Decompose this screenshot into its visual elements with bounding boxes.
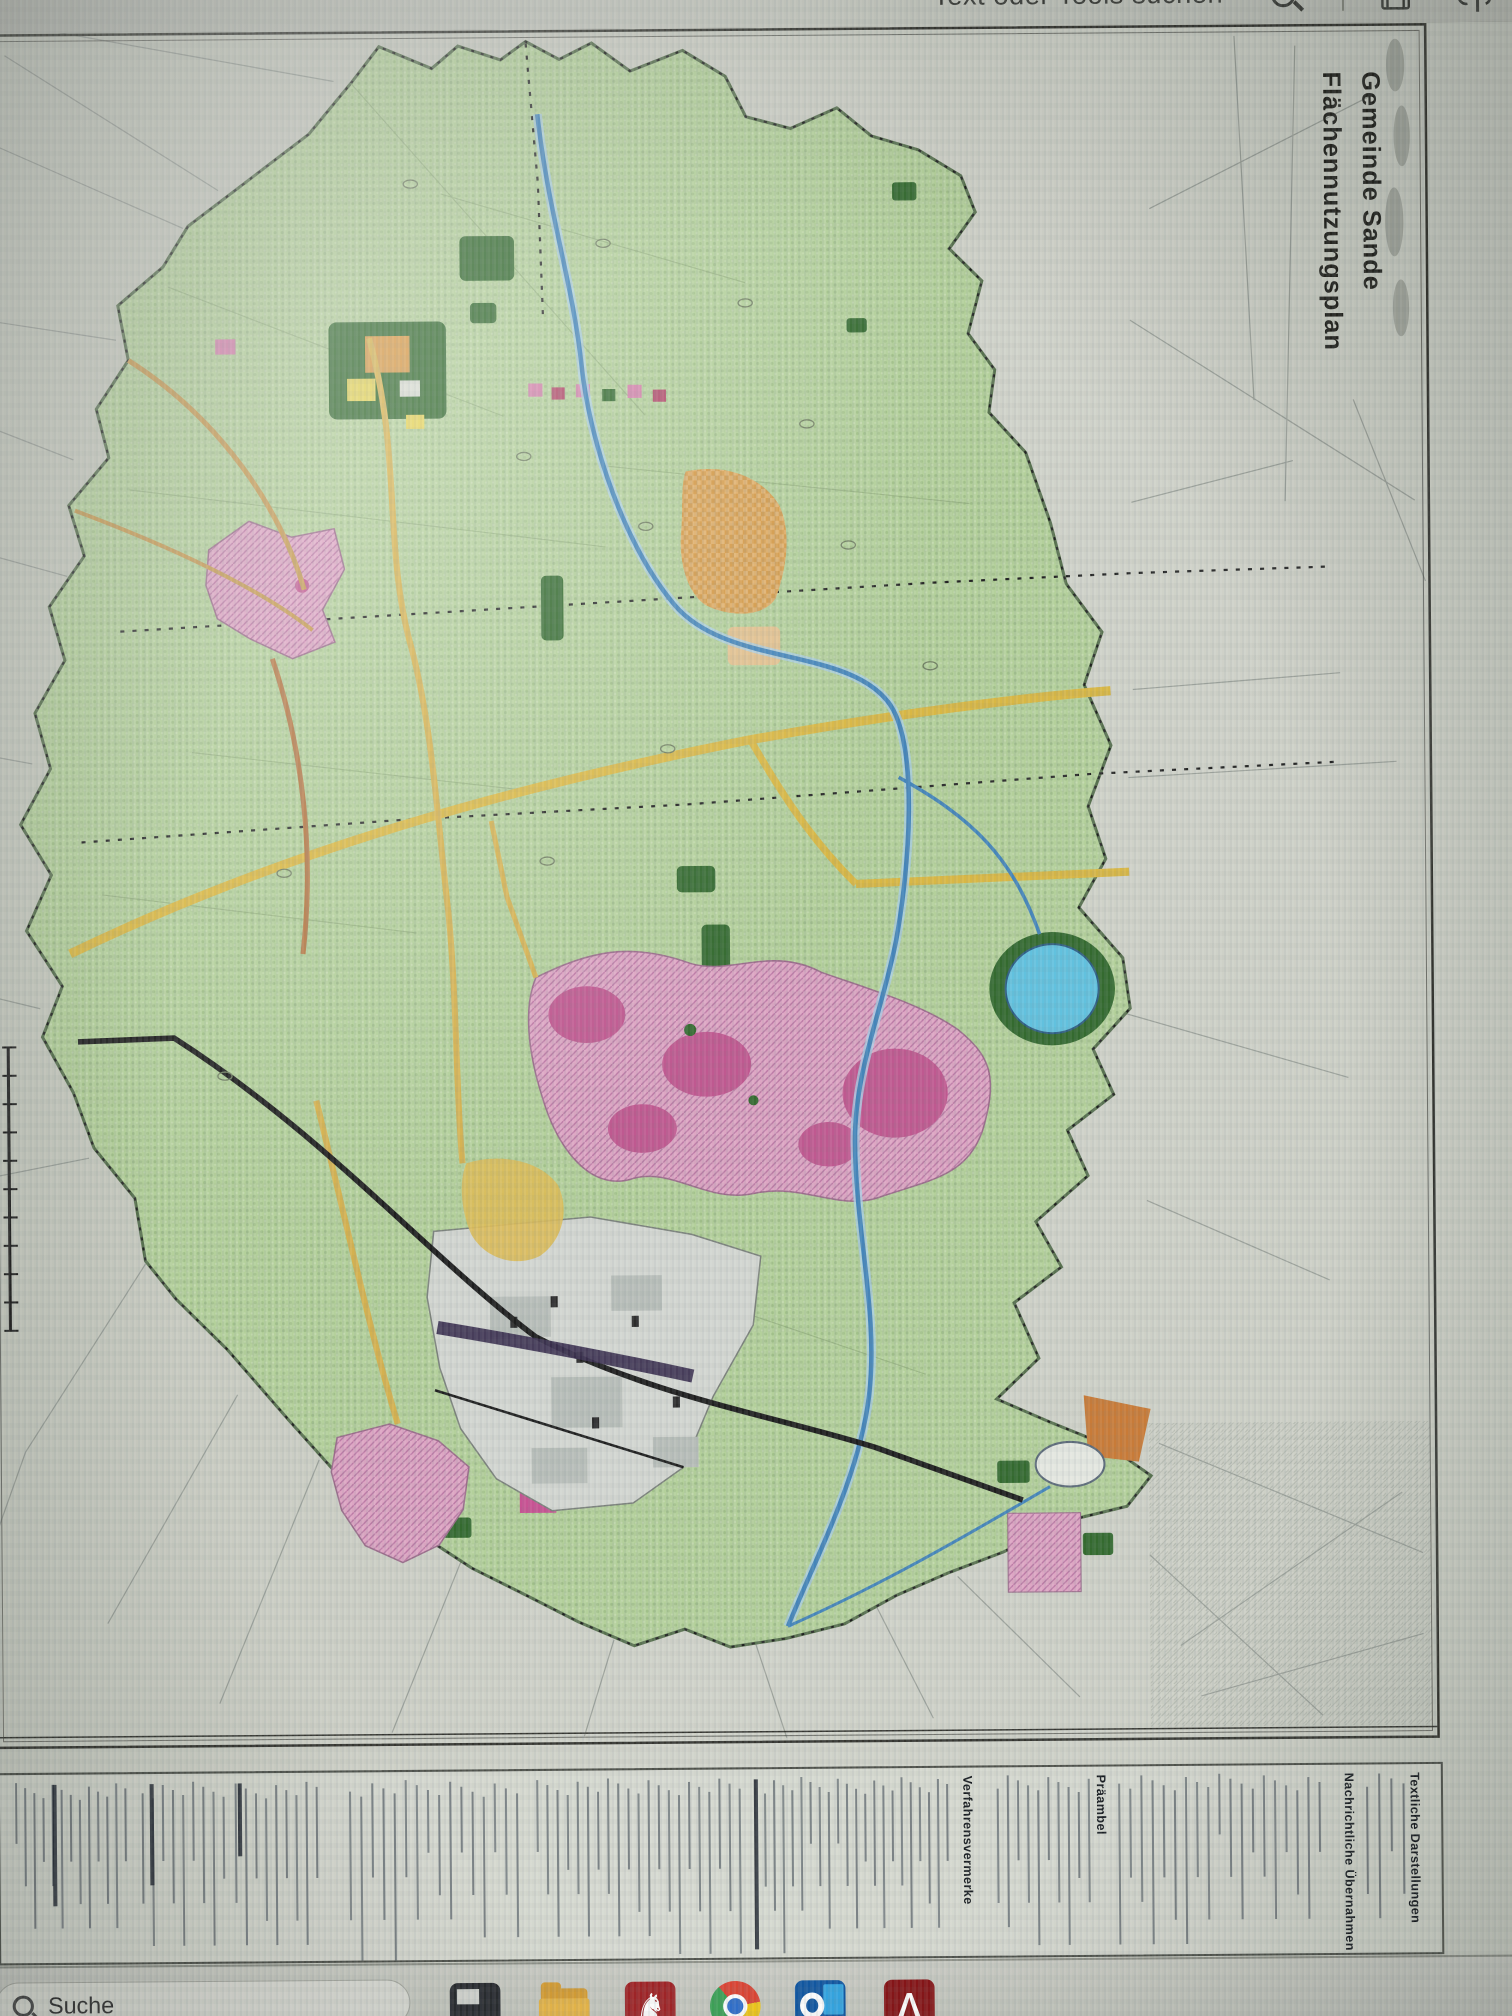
- legend-text-column: [1296, 1790, 1299, 1894]
- legend-text-column: [1185, 1777, 1188, 1944]
- lake: [1005, 944, 1099, 1034]
- search-icon[interactable]: [1271, 0, 1295, 7]
- legend-text-column: [88, 1787, 91, 1929]
- legend-text-column: [1402, 1783, 1405, 1893]
- legend-text-column: [33, 1793, 36, 1929]
- legend-section-header-bar: [52, 1785, 57, 1906]
- legend-text-column: [371, 1783, 374, 1877]
- legend-text-column: [864, 1794, 867, 1862]
- legend-text-column: [15, 1783, 18, 1844]
- legend-text-column: [1241, 1784, 1244, 1920]
- legend-text-column: [1068, 1787, 1071, 1945]
- legend-text-column: [627, 1788, 630, 1869]
- legend-text-column: [483, 1797, 486, 1938]
- legend-text-column: [997, 1789, 1000, 1903]
- legend-text-column: [837, 1779, 840, 1844]
- toolbar-separator: [1342, 0, 1344, 11]
- legend-text-column: [162, 1785, 165, 1861]
- legend-text-column: [1140, 1775, 1143, 1902]
- legend-text-column: [782, 1785, 785, 1953]
- legend-text-column: [182, 1795, 185, 1946]
- legend-text-column: [438, 1795, 441, 1895]
- legend-text-column: [70, 1795, 73, 1862]
- legend-text-column: [1017, 1780, 1020, 1860]
- legend-text-column: [106, 1797, 109, 1904]
- legend-text-column: [819, 1787, 822, 1886]
- legend-text-column: [1163, 1785, 1166, 1877]
- legend-text-column: [1218, 1774, 1221, 1835]
- legend-text-column: [1285, 1785, 1288, 1852]
- scale-bar: [2, 1047, 18, 1330]
- legend-text-column: [607, 1779, 610, 1894]
- file-explorer-icon[interactable]: [539, 1982, 590, 2016]
- legend-section-header-bar: [238, 1783, 243, 1856]
- legend-text-column: [1274, 1780, 1277, 1919]
- legend-text-column: [846, 1784, 849, 1886]
- legend-text-column: [97, 1792, 100, 1862]
- pond: [1035, 1442, 1104, 1487]
- legend-text-column: [79, 1800, 82, 1904]
- legend-text-column: [900, 1777, 903, 1885]
- legend-text-column: [494, 1783, 497, 1852]
- legend-text-column: [1027, 1785, 1030, 1902]
- legend-text-column: [416, 1785, 419, 1920]
- legend-text-column: [394, 1793, 397, 1962]
- legend-text-column: [698, 1787, 701, 1911]
- taskbar-search-label: Suche: [48, 1991, 114, 2016]
- pdf-page: Gemeinde Sande Flächennutzungsplan Verfa…: [0, 22, 1512, 1967]
- legend-text-column: [739, 1789, 742, 1954]
- land-use-map: [0, 22, 1512, 1967]
- legend-text-column: [873, 1780, 876, 1885]
- legend-text-column: [637, 1793, 640, 1911]
- legend-text-column: [212, 1792, 215, 1946]
- legend-text-column: [658, 1785, 661, 1869]
- legend-text-column: [24, 1788, 27, 1886]
- legend-text-column: [919, 1787, 922, 1861]
- legend-text-column: [471, 1792, 474, 1895]
- legend-text-column: [828, 1792, 831, 1929]
- legend-text-column: [587, 1787, 590, 1937]
- legend-text-column: [202, 1787, 205, 1903]
- legend-text-column: [1390, 1778, 1393, 1851]
- legend-text-column: [1196, 1782, 1199, 1877]
- legend-header-verfahrensvermerke: Verfahrensvermerke: [960, 1776, 975, 1905]
- acrobat-icon[interactable]: Λ: [884, 1979, 935, 2016]
- legend-text-column: [910, 1782, 913, 1928]
- legend-text-column: [316, 1787, 319, 1878]
- legend-text-column: [382, 1788, 385, 1920]
- legend-text-column: [647, 1780, 650, 1936]
- legend-text-column: [668, 1790, 671, 1911]
- legend-text-column: [855, 1789, 858, 1929]
- legend-text-column: [360, 1797, 363, 1963]
- legend-text-column: [245, 1788, 248, 1945]
- legend-header-praeambel: Präambel: [1094, 1775, 1109, 1835]
- legend-text-column: [1078, 1792, 1081, 1878]
- legend-text-column: [172, 1790, 175, 1903]
- legend-text-column: [728, 1784, 731, 1912]
- legend-text-column: [1366, 1787, 1369, 1894]
- legend-text-column: [1263, 1775, 1266, 1876]
- legend-text-column: [617, 1783, 620, 1936]
- legend-text-column: [449, 1782, 452, 1920]
- legend-text-column: [688, 1782, 691, 1869]
- legend-text-column: [800, 1777, 803, 1911]
- legend-text-column: [536, 1780, 539, 1852]
- taskbar-search-icon: [13, 1995, 34, 2016]
- legend-text-column: [764, 1793, 767, 1886]
- chrome-icon[interactable]: [710, 1981, 761, 2016]
- title-line-1: Gemeinde Sande: [1352, 71, 1389, 385]
- viewer-search-field[interactable]: Text oder Tools suchen: [933, 0, 1223, 12]
- legend-text-column: [1151, 1780, 1154, 1944]
- legend-text-column: [427, 1790, 430, 1853]
- legend-text-column: [678, 1795, 681, 1954]
- legend-text-column: [115, 1783, 118, 1928]
- outlook-icon[interactable]: [795, 1980, 846, 2016]
- legend-text-column: [1318, 1782, 1321, 1852]
- legend-text-column: [1037, 1790, 1040, 1945]
- legend-text-column: [460, 1787, 463, 1853]
- legend-text-column: [1088, 1779, 1091, 1902]
- legend-text-column: [937, 1779, 940, 1928]
- legend-text-column: [405, 1780, 408, 1877]
- legend-text-column: [275, 1785, 278, 1945]
- legend-text-column: [718, 1779, 721, 1869]
- legend-text-column: [265, 1798, 268, 1920]
- city-sketch-area: [1149, 1421, 1433, 1727]
- legend-text-column: [928, 1792, 931, 1903]
- legend-text-column: [891, 1790, 894, 1861]
- legend-text-column: [223, 1797, 226, 1879]
- legend-text-column: [1047, 1777, 1050, 1860]
- share-upload-icon[interactable]: [1457, 0, 1502, 20]
- legend-text-column: [1007, 1775, 1010, 1927]
- legend-text-column: [556, 1790, 559, 1937]
- legend-text-column: [1057, 1782, 1060, 1902]
- legend-text-column: [1252, 1789, 1255, 1853]
- legend-text-column: [295, 1795, 298, 1921]
- legend-text-column: [61, 1790, 64, 1929]
- legend-text-column: [773, 1780, 776, 1911]
- legend-text-column: [546, 1785, 549, 1894]
- legend-text-column: [1207, 1787, 1210, 1920]
- taskbar-search-box[interactable]: Suche: [0, 1979, 411, 2016]
- legend-text-column: [142, 1793, 145, 1903]
- legend-text-column: [349, 1792, 352, 1921]
- legend-text-column: [1307, 1777, 1310, 1919]
- legend-text-column: [708, 1792, 711, 1954]
- legend-text-column: [567, 1795, 570, 1870]
- legend-text-column: [285, 1790, 288, 1878]
- legend-section-header-bar: [754, 1779, 759, 1949]
- legend-text-column: [255, 1793, 258, 1878]
- legend-section-header-bar: [150, 1784, 155, 1885]
- legend-header-nachrichtliche-uebernahmen: Nachrichtliche Übernahmen: [1342, 1773, 1358, 1951]
- legend-text-column: [516, 1793, 519, 1937]
- niedersachsen-horse-icon[interactable]: ♞: [625, 1981, 676, 2016]
- photographed-screen: Text oder Tools suchen: [0, 0, 1512, 2016]
- legend-text-column: [1174, 1790, 1177, 1920]
- pinned-app-dark-icon[interactable]: [450, 1983, 501, 2016]
- legend-text-column: [1378, 1773, 1381, 1918]
- legend-text-column: [577, 1782, 580, 1894]
- legend-text-column: [946, 1784, 949, 1861]
- map-legend-band: Verfahrensvermerke Präambel Nachrichtlic…: [0, 1762, 1444, 1966]
- legend-text-column: [597, 1792, 600, 1870]
- legend-text-column: [882, 1785, 885, 1928]
- legend-text-column: [1229, 1779, 1232, 1877]
- map-sheet-title: Gemeinde Sande Flächennutzungsplan: [1308, 71, 1394, 385]
- legend-text-column: [305, 1782, 308, 1945]
- legend-text-column: [809, 1782, 812, 1844]
- legend-header-textliche-darstellungen: Textliche Darstellungen: [1407, 1772, 1422, 1923]
- legend-text-column: [1118, 1784, 1121, 1945]
- title-line-2: Flächennutzungsplan: [1313, 71, 1350, 385]
- save-icon[interactable]: [1378, 0, 1413, 19]
- legend-text-column: [42, 1798, 45, 1862]
- legend-text-column: [791, 1790, 794, 1886]
- legend-text-column: [124, 1788, 127, 1861]
- legend-text-column: [1129, 1789, 1132, 1878]
- legend-text-column: [192, 1782, 195, 1861]
- legend-text-column: [505, 1788, 508, 1894]
